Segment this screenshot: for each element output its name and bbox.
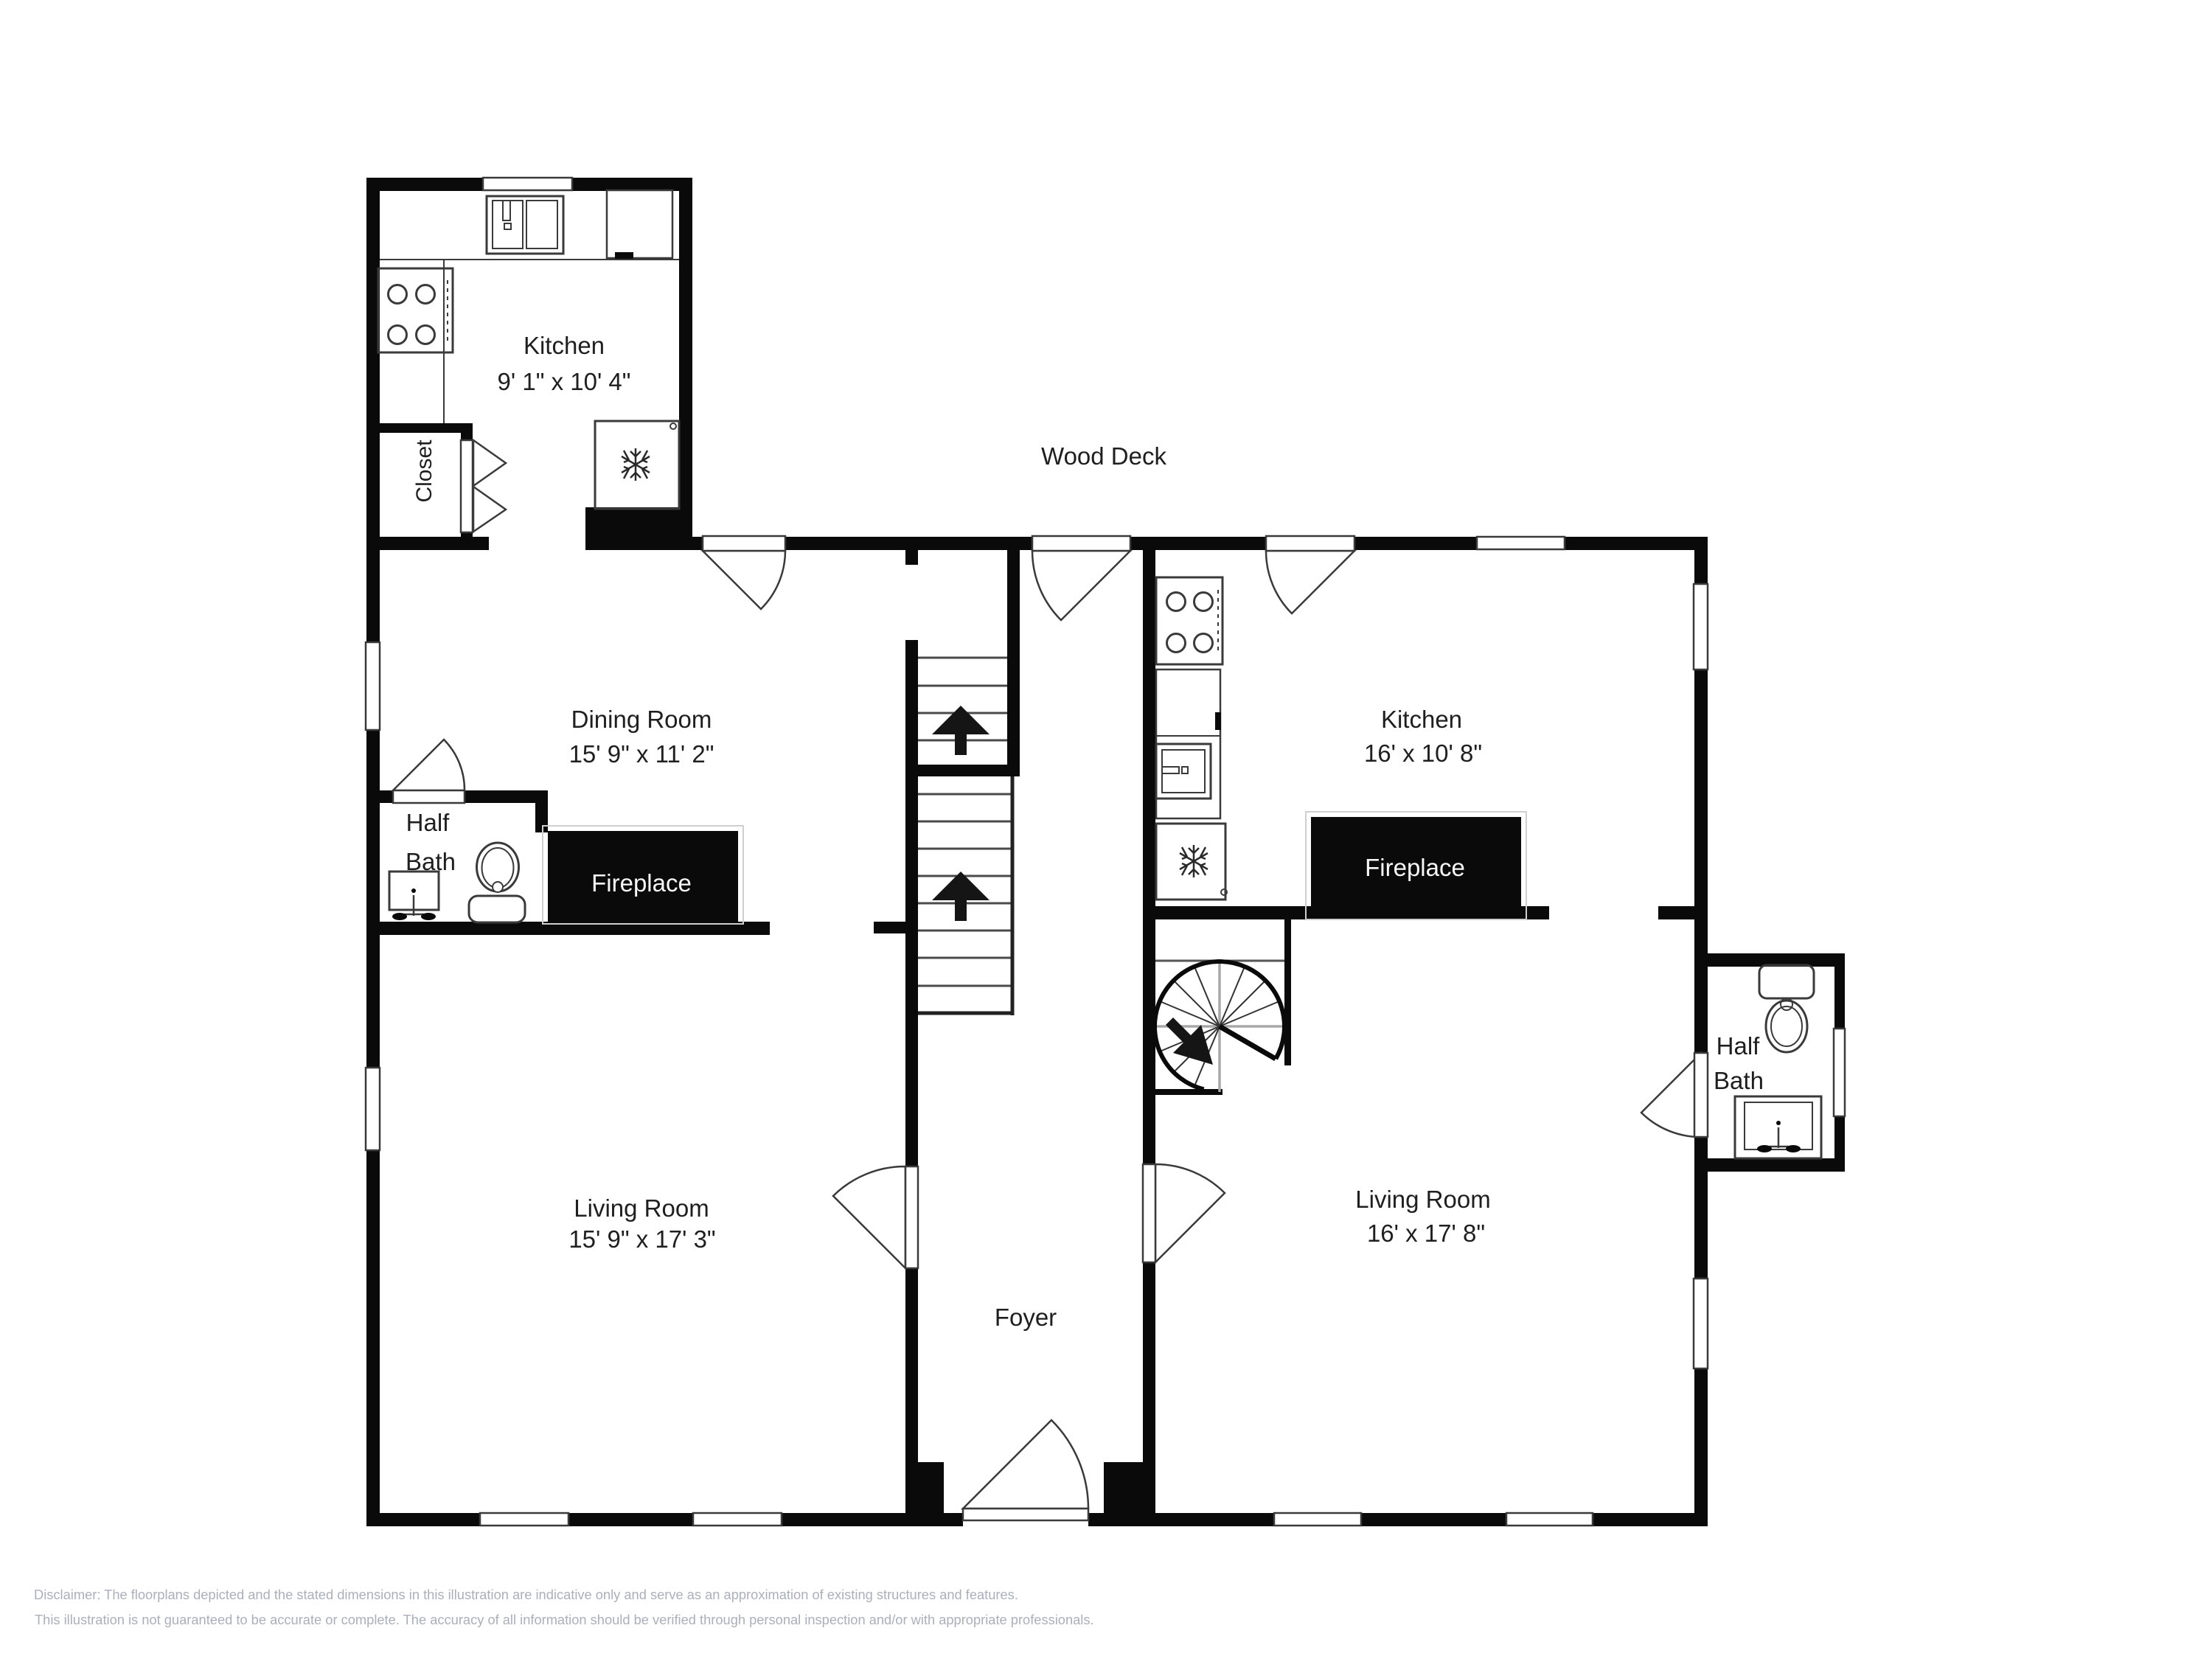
- svg-text:16' x 17' 8": 16' x 17' 8": [1367, 1220, 1485, 1247]
- svg-text:Bath: Bath: [406, 848, 456, 875]
- svg-text:Bath: Bath: [1714, 1067, 1764, 1094]
- svg-text:Living Room: Living Room: [1355, 1186, 1490, 1213]
- svg-text:This illustration is not guara: This illustration is not guaranteed to b…: [35, 1612, 1094, 1627]
- svg-text:Fireplace: Fireplace: [591, 869, 692, 897]
- svg-text:Foyer: Foyer: [995, 1304, 1057, 1331]
- svg-text:Wood Deck: Wood Deck: [1041, 442, 1166, 470]
- svg-text:15' 9" x 17' 3": 15' 9" x 17' 3": [568, 1225, 715, 1253]
- svg-text:Living Room: Living Room: [574, 1194, 709, 1222]
- svg-text:Disclaimer: The floorplans dep: Disclaimer: The floorplans depicted and …: [34, 1587, 1018, 1602]
- svg-text:Dining Room: Dining Room: [571, 706, 712, 733]
- svg-text:16' x 10' 8": 16' x 10' 8": [1364, 740, 1482, 767]
- svg-text:Kitchen: Kitchen: [524, 332, 605, 359]
- svg-text:9' 1" x 10' 4": 9' 1" x 10' 4": [498, 368, 631, 395]
- svg-text:Fireplace: Fireplace: [1365, 854, 1465, 881]
- svg-text:Half: Half: [1717, 1032, 1761, 1060]
- svg-text:15' 9" x 11' 2": 15' 9" x 11' 2": [569, 740, 714, 768]
- svg-text:Half: Half: [406, 809, 451, 836]
- svg-text:Kitchen: Kitchen: [1381, 706, 1462, 733]
- svg-text:Closet: Closet: [412, 439, 437, 503]
